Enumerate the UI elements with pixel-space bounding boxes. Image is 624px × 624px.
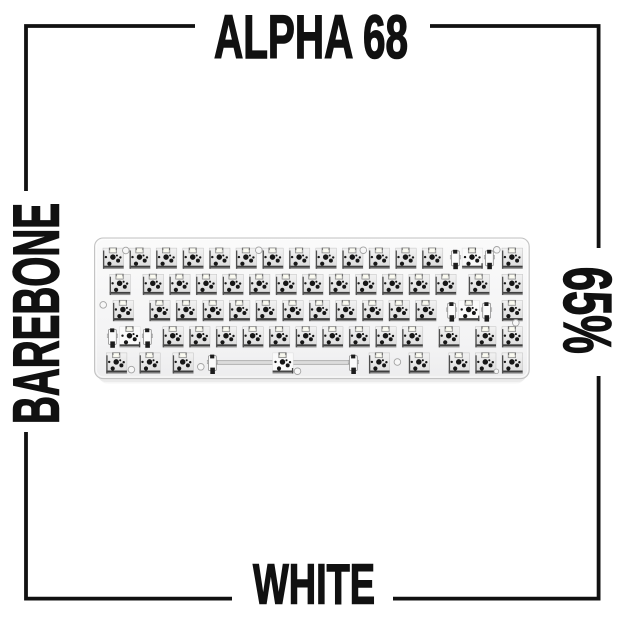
svg-text:WHITE: WHITE: [253, 553, 375, 617]
svg-text:BAREBONE: BAREBONE: [0, 203, 73, 424]
svg-text:65%: 65%: [549, 267, 624, 354]
svg-text:ALPHA 68: ALPHA 68: [214, 3, 408, 71]
